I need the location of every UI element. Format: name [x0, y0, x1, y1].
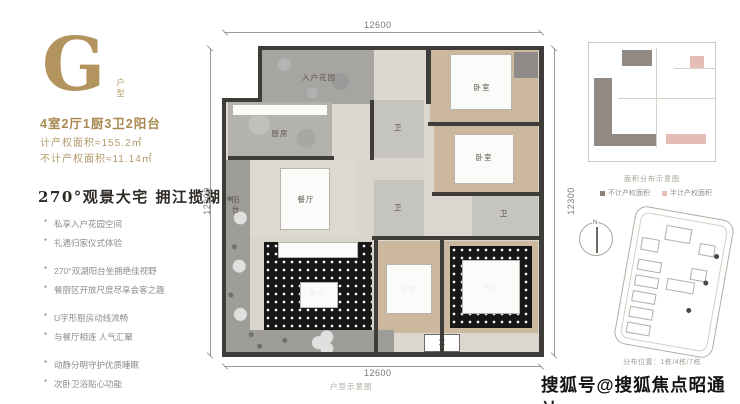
area-gray-block	[622, 50, 652, 66]
wall	[440, 240, 444, 353]
label-living: 客厅	[278, 288, 358, 299]
wall	[222, 98, 262, 102]
floorplan-page: G 户型 4室2厅1厨3卫2阳台 计产权面积≈155.2㎡ 不计产权面积≈11.…	[0, 0, 740, 404]
marketing-headline: 270°观景大宅 拥江揽湖	[38, 186, 222, 207]
label-master: 主卧	[452, 282, 530, 293]
wall	[539, 46, 544, 356]
wall	[370, 100, 374, 160]
selling-point: 私享入户花园空间	[44, 218, 209, 230]
site-plan	[613, 204, 736, 359]
selling-point: 餐厨区开放尺度尽享会客之趣	[44, 284, 209, 296]
wall	[258, 46, 262, 102]
wall	[374, 240, 378, 353]
balcony-bottom-strip	[226, 330, 394, 353]
legend-item: 不计产权面积	[600, 188, 650, 198]
area-pink-block	[666, 134, 706, 144]
wall	[428, 122, 544, 126]
wall	[426, 46, 431, 104]
sofa	[278, 242, 358, 258]
area-diagram	[578, 38, 726, 170]
wall	[372, 236, 544, 240]
label-dining: 餐厅	[266, 194, 346, 205]
selling-point: U字形厨房动线流畅	[44, 312, 209, 324]
dim-line-top	[224, 32, 542, 33]
dim-bottom-value: 12600	[364, 368, 392, 378]
selling-points-list: 私享入户花园空间 礼遇归家仪式体验 270°双湖阳台坐拥绝佳视野 餐厨区开放尺度…	[44, 218, 209, 397]
selling-point: 动静分明守护优质睡眠	[44, 359, 209, 371]
area-legend: 不计产权面积 半计产权面积	[582, 188, 730, 198]
dim-top-value: 12600	[364, 20, 392, 30]
unit-type-letter: G	[42, 28, 105, 102]
site-plan-caption: 分布位置：1栋/4栋/7栋	[592, 357, 732, 367]
label-bath-right: 卫	[486, 208, 522, 219]
label-bath-top: 卫	[380, 122, 416, 133]
label-kitchen: 厨房	[240, 128, 320, 139]
legend-swatch-pink	[662, 191, 667, 196]
selling-point: 270°双湖阳台坐拥绝佳视野	[44, 265, 209, 277]
area-gray-block	[594, 134, 656, 146]
legend-label: 半计产权面积	[670, 188, 712, 198]
area-diagram-caption: 面积分布示意图	[578, 174, 726, 184]
label-bedroom-top: 卧室	[442, 82, 522, 93]
area-with-rights: 计产权面积≈155.2㎡	[40, 134, 143, 149]
balcony-left-strip	[226, 160, 250, 353]
dim-right-value: 12300	[566, 187, 576, 215]
area-pink-block	[690, 56, 704, 68]
compass-needle	[596, 227, 598, 253]
plan-notch	[222, 46, 260, 100]
area-diagram-line	[674, 68, 716, 69]
label-bedroom-mid: 卧室	[444, 152, 524, 163]
selling-point: 次卧卫浴贴心功能	[44, 378, 209, 390]
legend-swatch-dark	[600, 191, 605, 196]
compass-icon: N	[579, 222, 613, 256]
floor-plan: ✕ 入户花园 厨房 餐厅 客厅 阳台 卧室 卧室 卧室 主卧 卫 卫 卫	[222, 46, 544, 358]
label-balcony: 阳台	[230, 196, 241, 215]
selling-point: 礼遇归家仪式体验	[44, 237, 209, 249]
label-bath-center: 卫	[380, 202, 416, 213]
area-without-rights: 不计产权面积≈11.14㎡	[40, 150, 153, 165]
compass-north-label: N	[592, 220, 598, 226]
dim-line-right	[554, 48, 555, 356]
layout-spec: 4室2厅1厨3卫2阳台	[40, 113, 161, 132]
wall	[432, 192, 544, 196]
label-bedroom-bottom: 卧室	[370, 284, 448, 295]
sohu-watermark: 搜狐号@搜狐焦点昭通站	[541, 372, 740, 404]
wall	[222, 352, 544, 357]
unit-type-label: 户型	[115, 78, 126, 100]
plan-caption: 户型示意图	[330, 381, 373, 392]
label-entry-garden: 入户花园	[274, 72, 364, 83]
wall	[228, 156, 334, 160]
selling-point: 与餐厅相连 人气汇聚	[44, 331, 209, 343]
dim-left-value: 12300	[202, 187, 212, 215]
wall	[222, 98, 226, 356]
wall	[258, 46, 544, 50]
area-diagram-line	[618, 98, 716, 99]
dim-line-bottom	[224, 366, 542, 367]
legend-item: 半计产权面积	[662, 188, 712, 198]
closet-top-right	[514, 52, 538, 78]
kitchen-counter	[232, 104, 328, 116]
legend-label: 不计产权面积	[608, 188, 650, 198]
